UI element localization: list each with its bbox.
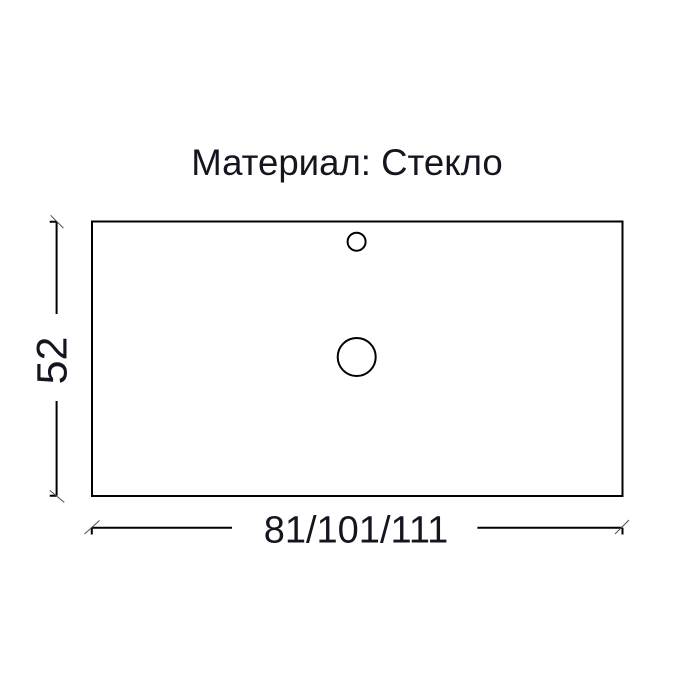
svg-text:52: 52 — [29, 337, 77, 385]
svg-text:Материал: Стекло: Материал: Стекло — [191, 142, 503, 183]
svg-text:81/101/111: 81/101/111 — [264, 510, 449, 552]
